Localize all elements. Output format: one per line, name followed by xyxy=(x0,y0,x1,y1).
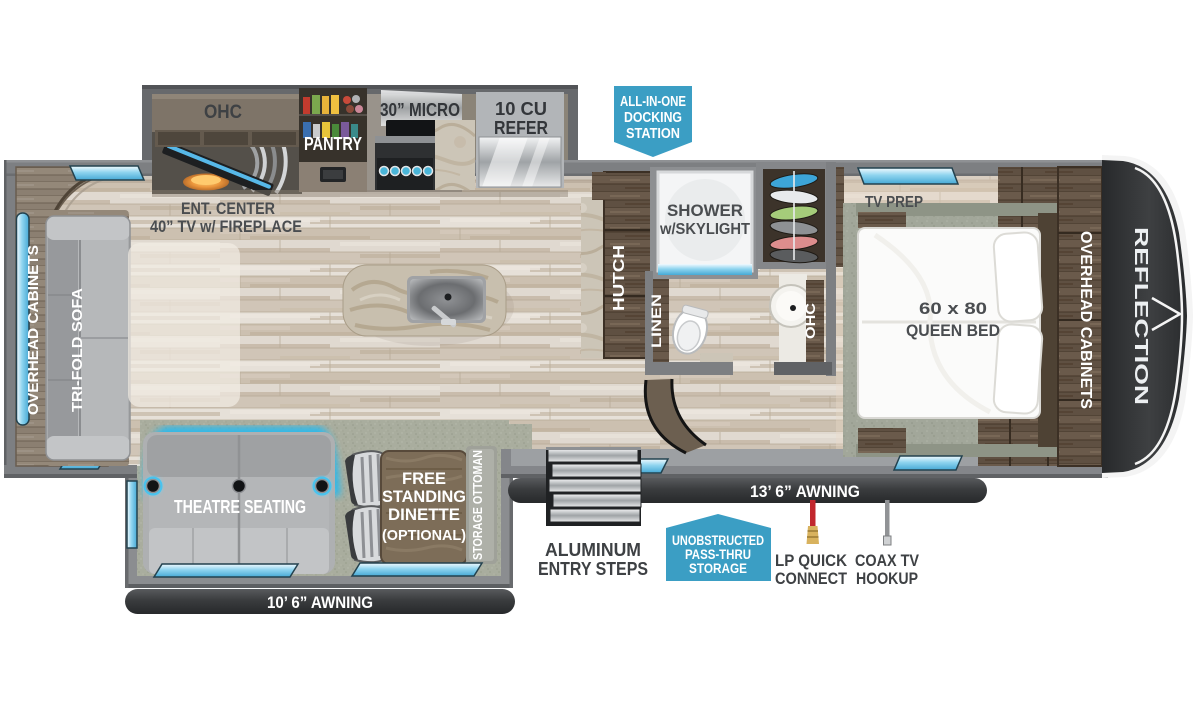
svg-text:LP QUICK: LP QUICK xyxy=(775,552,847,570)
svg-text:REFLECTION: REFLECTION xyxy=(1131,227,1151,405)
svg-text:DOCKING: DOCKING xyxy=(624,110,682,126)
svg-text:ENT. CENTER: ENT. CENTER xyxy=(181,199,275,218)
svg-text:CONNECT: CONNECT xyxy=(775,570,847,588)
svg-text:STATION: STATION xyxy=(626,126,680,142)
svg-text:ENTRY STEPS: ENTRY STEPS xyxy=(538,559,648,579)
svg-text:STANDING: STANDING xyxy=(382,487,466,506)
svg-text:OVERHEAD CABINETS: OVERHEAD CABINETS xyxy=(26,245,42,415)
svg-text:COAX TV: COAX TV xyxy=(855,552,919,570)
svg-text:OHC: OHC xyxy=(802,303,818,339)
svg-text:UNOBSTRUCTED: UNOBSTRUCTED xyxy=(672,533,764,548)
svg-text:TRI-FOLD SOFA: TRI-FOLD SOFA xyxy=(69,288,86,412)
svg-text:STORAGE OTTOMAN: STORAGE OTTOMAN xyxy=(471,450,485,560)
svg-text:HOOKUP: HOOKUP xyxy=(856,570,918,588)
svg-text:10 CU: 10 CU xyxy=(495,99,547,119)
svg-text:REFER: REFER xyxy=(494,118,548,138)
svg-text:FREE: FREE xyxy=(402,469,446,488)
svg-text:THEATRE SEATING: THEATRE SEATING xyxy=(174,496,306,517)
svg-text:60 x 80: 60 x 80 xyxy=(919,299,987,318)
svg-text:OHC: OHC xyxy=(204,101,242,123)
svg-text:SHOWER: SHOWER xyxy=(667,202,743,220)
svg-text:PANTRY: PANTRY xyxy=(304,133,363,154)
svg-text:PASS-THRU: PASS-THRU xyxy=(685,547,751,562)
svg-text:LINEN: LINEN xyxy=(648,294,664,348)
svg-text:13’ 6” AWNING: 13’ 6” AWNING xyxy=(750,482,860,501)
svg-text:ALL-IN-ONE: ALL-IN-ONE xyxy=(620,94,686,110)
svg-text:40” TV w/ FIREPLACE: 40” TV w/ FIREPLACE xyxy=(150,217,302,236)
svg-text:w/SKYLIGHT: w/SKYLIGHT xyxy=(659,221,750,238)
svg-text:10’ 6” AWNING: 10’ 6” AWNING xyxy=(267,593,373,612)
svg-text:ALUMINUM: ALUMINUM xyxy=(545,540,641,560)
svg-text:30” MICRO: 30” MICRO xyxy=(380,100,460,120)
svg-text:QUEEN BED: QUEEN BED xyxy=(906,321,1000,340)
svg-text:STORAGE: STORAGE xyxy=(689,561,747,576)
svg-text:(OPTIONAL): (OPTIONAL) xyxy=(382,527,466,544)
svg-text:HUTCH: HUTCH xyxy=(611,245,628,311)
svg-text:OVERHEAD CABINETS: OVERHEAD CABINETS xyxy=(1077,231,1094,409)
svg-text:TV PREP: TV PREP xyxy=(865,194,923,211)
svg-text:DINETTE: DINETTE xyxy=(388,505,460,524)
